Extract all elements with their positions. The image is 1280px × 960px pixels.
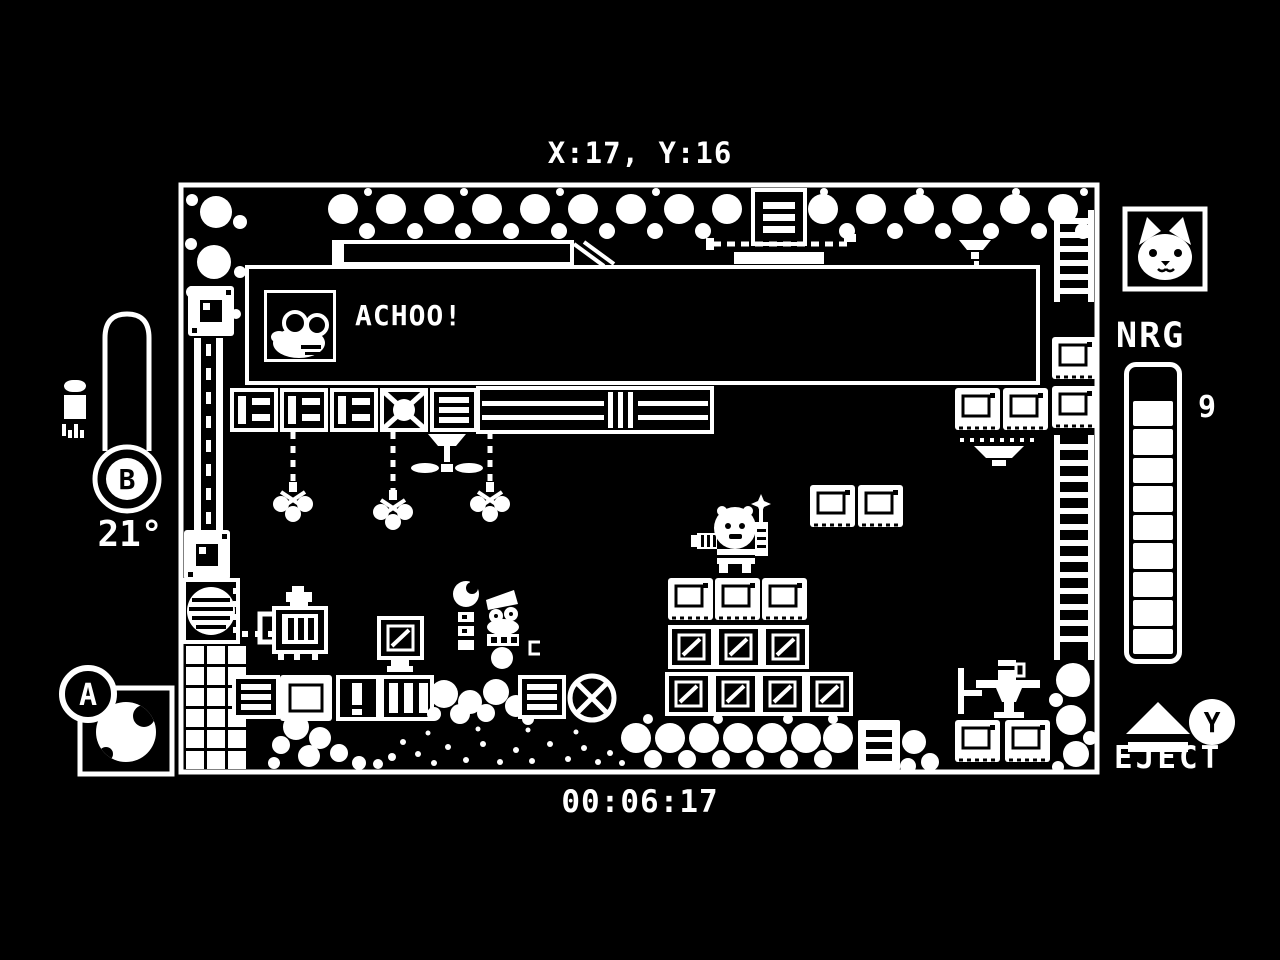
fan-drone — [411, 434, 483, 473]
energy-segment — [1133, 515, 1173, 541]
floating-crates — [810, 485, 903, 527]
table-set — [958, 660, 1040, 718]
game-screen: X:17, Y:16 — [0, 0, 1280, 960]
claw-hooks — [273, 432, 510, 530]
energy-segment — [1133, 486, 1173, 512]
panel-right-2 — [1052, 386, 1097, 428]
ladder-column-right — [1054, 210, 1094, 660]
vent-grate — [184, 580, 238, 642]
mole-with-glasses-icon — [264, 290, 336, 362]
position-readout: X:17, Y:16 — [0, 136, 1280, 170]
player-character — [691, 494, 771, 573]
eject-label: EJECT — [1114, 740, 1222, 776]
energy-bar — [1124, 362, 1182, 664]
energy-segment — [1133, 429, 1173, 455]
b-button-label: B — [119, 463, 136, 496]
panel-bottom-2 — [1005, 720, 1050, 762]
rubble-speckles — [400, 727, 625, 767]
y-button-label: Y — [1204, 706, 1221, 739]
furnace-machine — [260, 586, 326, 660]
crate-on-stand — [379, 618, 422, 672]
ladder-tile-floor — [858, 720, 900, 770]
bubble-corner-right — [1049, 663, 1097, 773]
panel-bottom-1 — [955, 720, 1000, 762]
thermometer-icon: B — [88, 306, 168, 518]
bubble-ceiling — [328, 188, 1091, 239]
crate-stack — [667, 578, 851, 714]
item-slot: A — [52, 658, 178, 780]
energy-segment — [1133, 600, 1173, 626]
platform-row — [234, 675, 564, 725]
dialog-text: ACHOO! — [355, 299, 462, 332]
energy-segment — [1133, 401, 1173, 427]
conveyor-belt — [334, 242, 614, 266]
magnet-tile-1 — [188, 286, 234, 336]
cat-face-icon — [1122, 206, 1208, 292]
dotted-pipe — [236, 588, 278, 634]
magnet-tile-2 — [184, 530, 230, 580]
energy-segment — [1133, 572, 1173, 598]
energy-value: 9 — [1198, 390, 1216, 425]
a-button-label: A — [79, 678, 97, 713]
ladder-tile-top — [753, 190, 805, 244]
funnel-right — [960, 440, 1040, 466]
energy-label: NRG — [1116, 316, 1185, 356]
panel-right-1 — [1052, 337, 1097, 379]
wrench-pickup — [453, 580, 482, 607]
energy-segment — [1133, 629, 1173, 655]
energy-segment — [1133, 543, 1173, 569]
timer-readout: 00:06:17 — [0, 784, 1280, 820]
temperature-readout: 21° — [78, 514, 182, 555]
funnel-top — [959, 240, 991, 266]
girder-row — [232, 388, 1048, 432]
bubble-mound — [268, 714, 396, 770]
dialog-box[interactable]: ACHOO! — [245, 265, 1040, 385]
crossed-circle-tile — [570, 676, 614, 720]
energy-segment — [1133, 458, 1173, 484]
energy-segment — [1133, 372, 1173, 398]
npc-robot — [453, 580, 540, 669]
pipe-column — [194, 338, 223, 530]
